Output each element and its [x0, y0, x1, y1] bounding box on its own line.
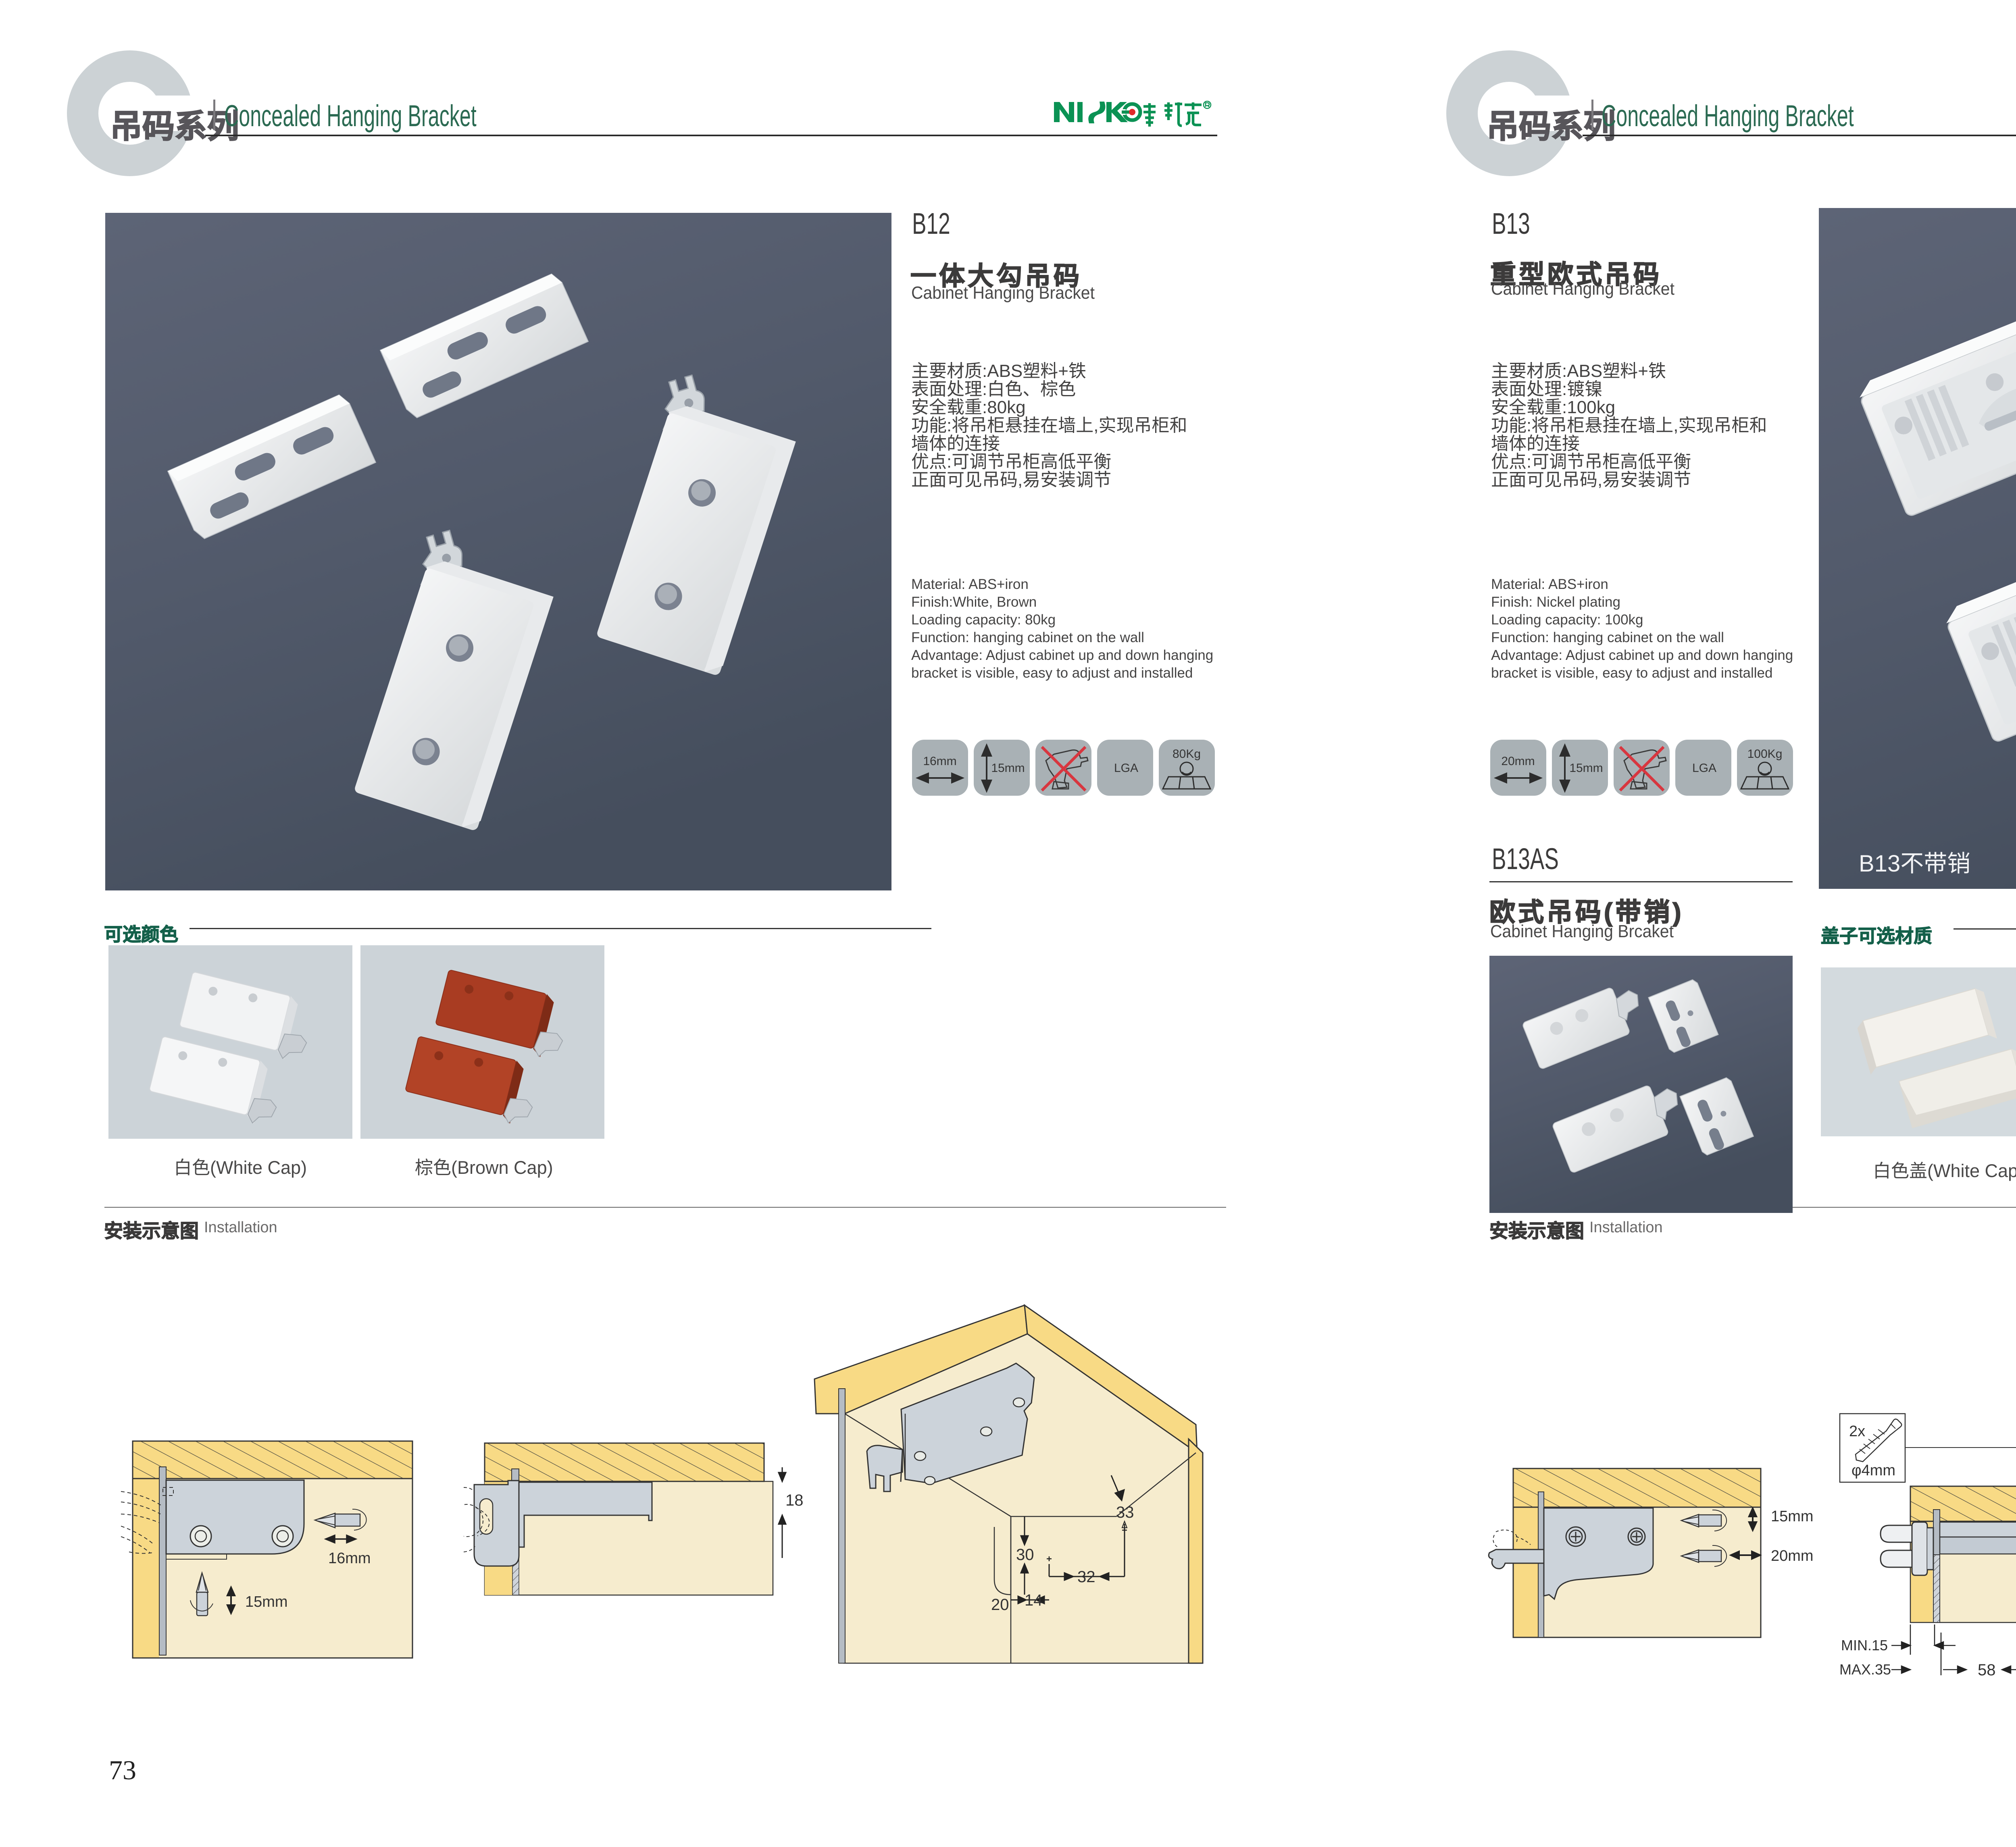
svg-text:16mm: 16mm — [328, 1550, 371, 1567]
svg-text:LGA: LGA — [1692, 761, 1716, 775]
svg-text:15mm: 15mm — [991, 761, 1025, 775]
svg-text:58: 58 — [1978, 1661, 1996, 1679]
svg-text:20mm: 20mm — [1771, 1547, 1814, 1564]
svg-text:MAX.35: MAX.35 — [1839, 1661, 1891, 1678]
svg-text:20: 20 — [991, 1596, 1009, 1614]
svg-text:14: 14 — [1025, 1591, 1043, 1609]
svg-text:15mm: 15mm — [1569, 761, 1603, 775]
svg-text:33: 33 — [1116, 1504, 1134, 1521]
svg-text:2x: 2x — [1849, 1423, 1865, 1440]
svg-text:80Kg: 80Kg — [1173, 747, 1201, 761]
svg-text:100Kg: 100Kg — [1747, 747, 1783, 761]
svg-text:18: 18 — [785, 1491, 804, 1509]
svg-text:15mm: 15mm — [1771, 1508, 1814, 1525]
svg-text:16mm: 16mm — [923, 755, 956, 768]
svg-text:20mm: 20mm — [1501, 755, 1535, 768]
svg-text:32: 32 — [1077, 1568, 1095, 1586]
svg-text:15mm: 15mm — [245, 1593, 288, 1610]
svg-text:MIN.15: MIN.15 — [1841, 1637, 1888, 1654]
svg-text:φ4mm: φ4mm — [1851, 1462, 1895, 1479]
svg-text:LGA: LGA — [1114, 761, 1138, 775]
svg-text:30: 30 — [1016, 1546, 1034, 1564]
